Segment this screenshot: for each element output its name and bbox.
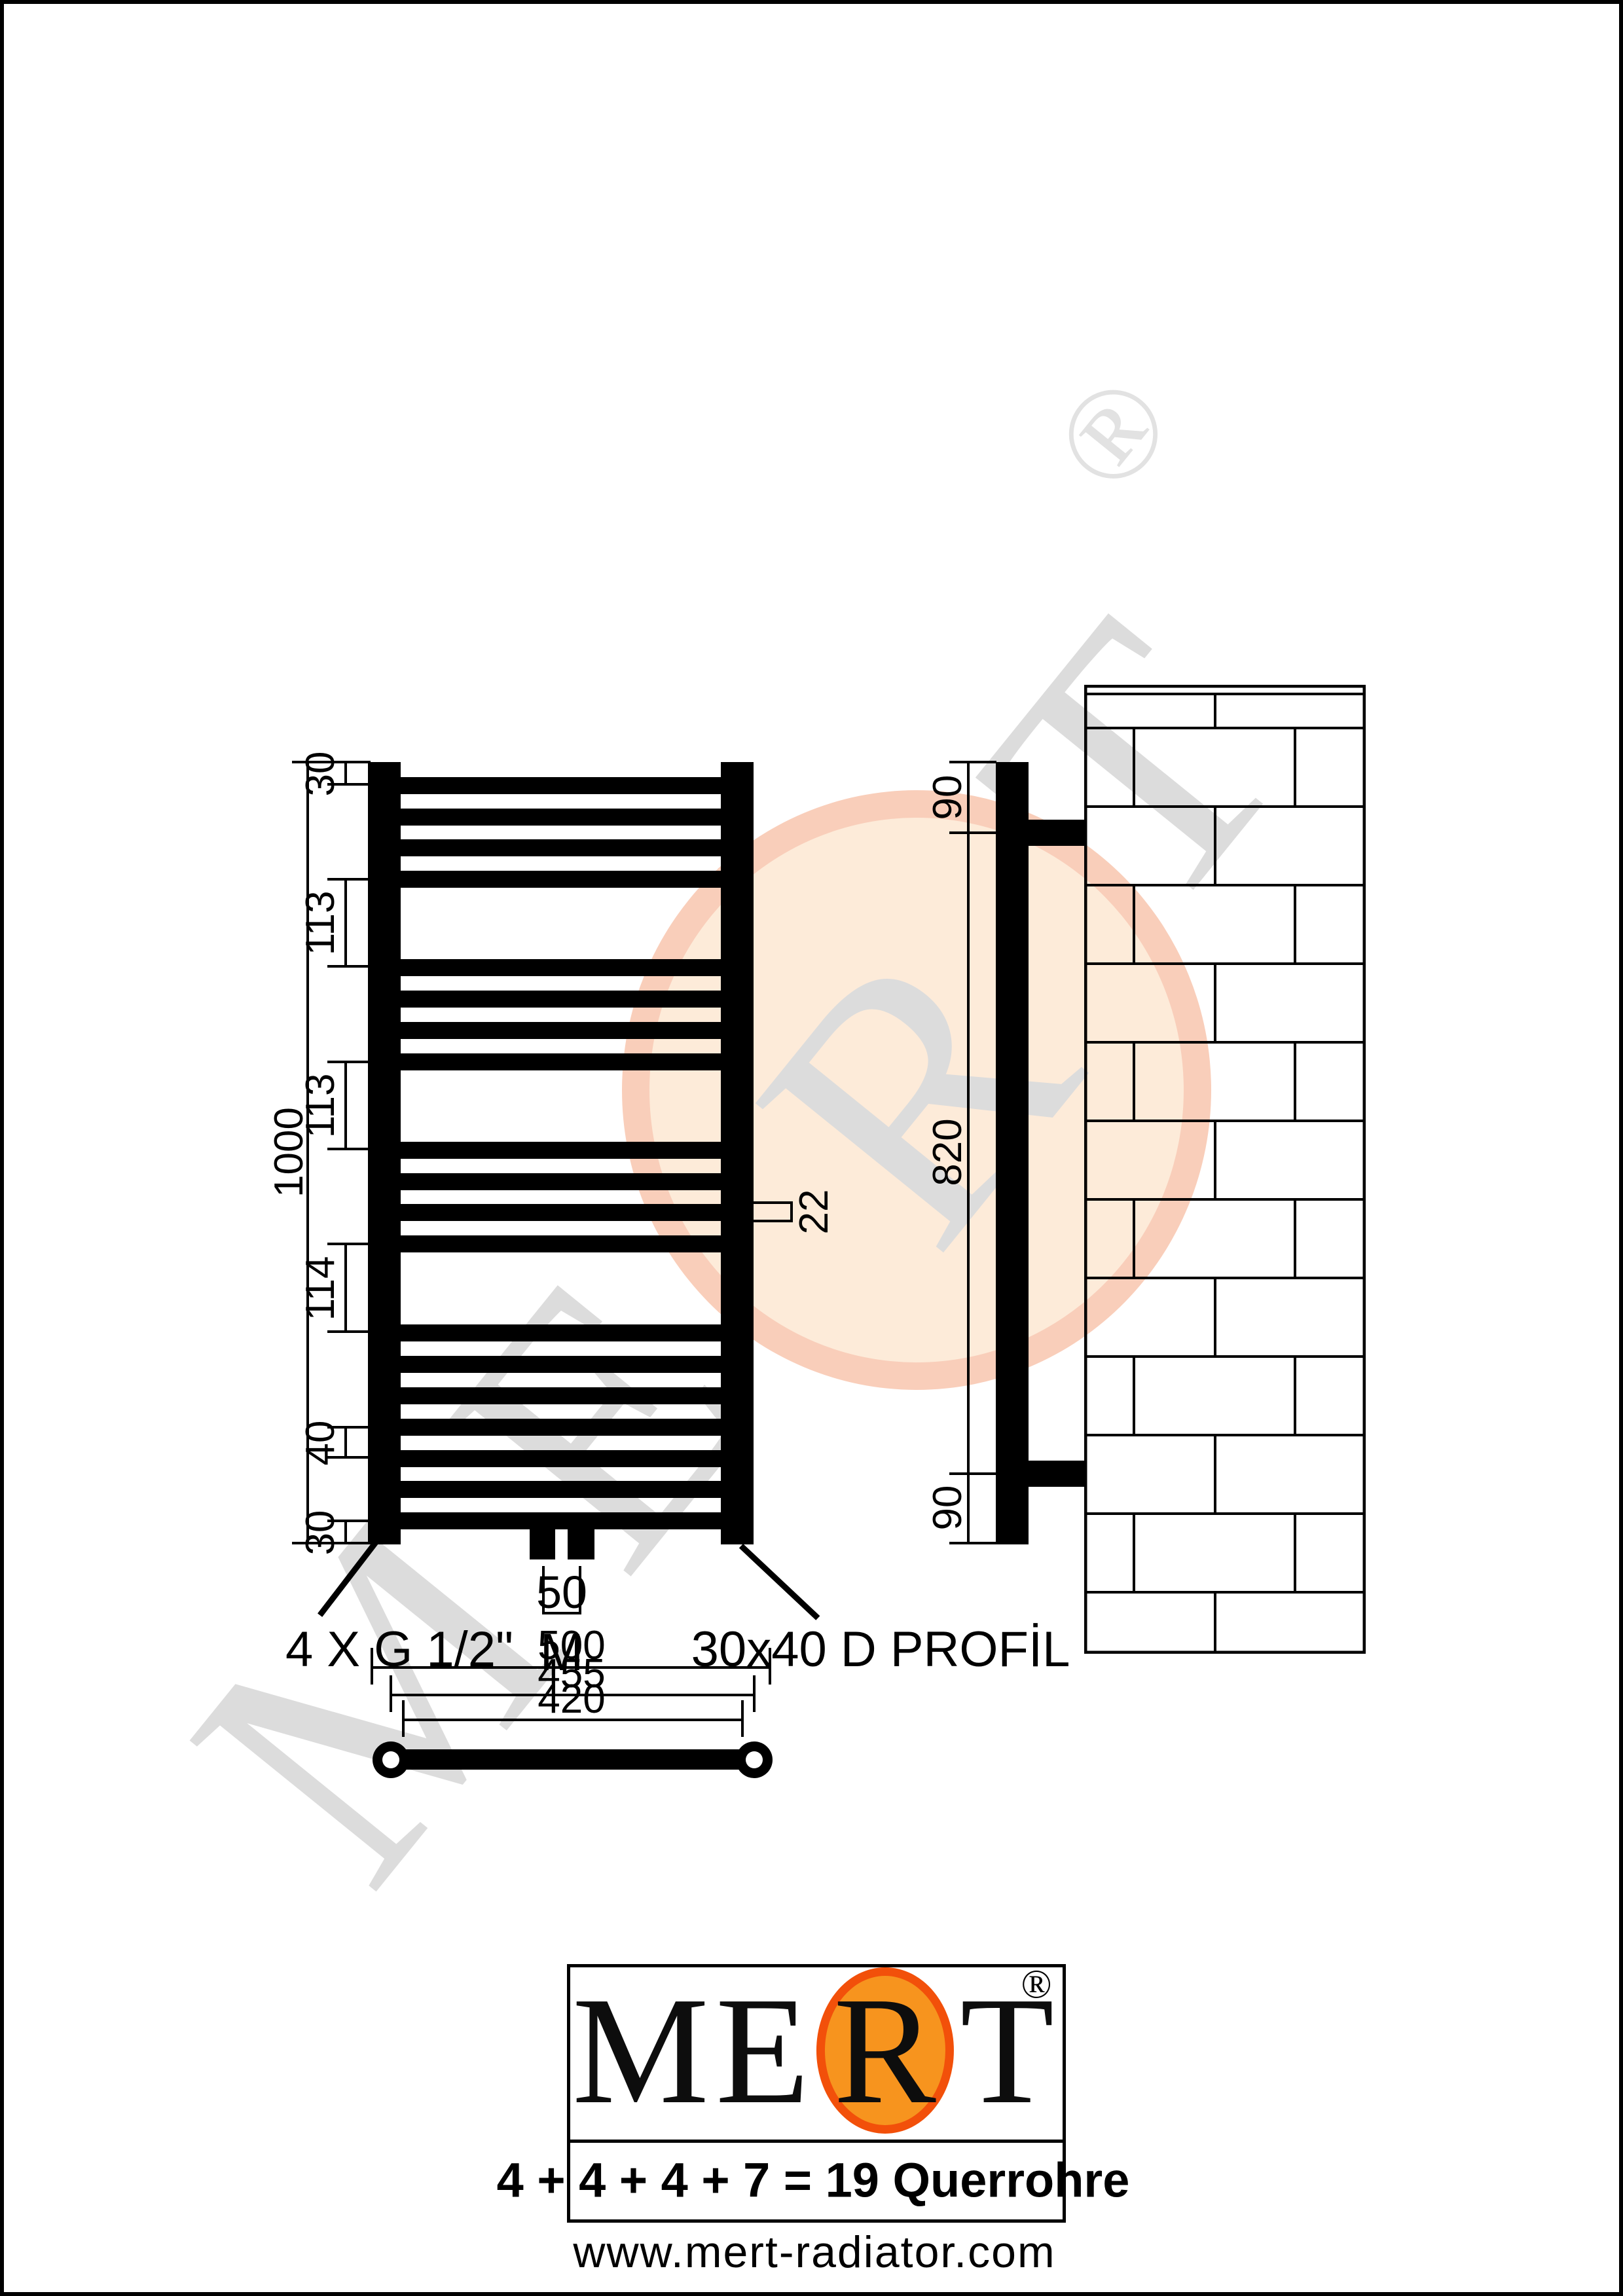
logo-registered-icon: ® bbox=[1021, 1962, 1051, 2009]
top-view-rail-left-bore bbox=[382, 1751, 399, 1768]
cross-tube bbox=[401, 1387, 721, 1404]
connection-tab-left bbox=[530, 1529, 555, 1559]
dim-text-90-bottom: 90 bbox=[928, 1485, 968, 1531]
connection-tab-right bbox=[568, 1529, 594, 1559]
dim-text-114: 114 bbox=[301, 1256, 341, 1321]
dim-text-820: 820 bbox=[928, 1118, 968, 1186]
dim-text-113-upper: 113 bbox=[301, 891, 341, 956]
logo-orange-ellipse: R bbox=[816, 1967, 953, 2134]
cross-tube bbox=[401, 1419, 721, 1436]
side-profile-bar bbox=[996, 762, 1029, 1544]
cross-tube bbox=[401, 1142, 721, 1159]
logo-letter-e: E bbox=[716, 1974, 810, 2128]
dim-tick bbox=[949, 1542, 996, 1544]
dim-tick bbox=[327, 1061, 371, 1063]
dim-text-113-mid: 113 bbox=[301, 1074, 341, 1139]
logo-divider bbox=[567, 2140, 1066, 2143]
cross-tube bbox=[401, 959, 721, 976]
cross-tube bbox=[401, 1204, 721, 1221]
dim-text-30-bottom: 30 bbox=[301, 1510, 341, 1556]
dim-tick bbox=[402, 1700, 405, 1737]
front-rail-right bbox=[721, 762, 754, 1544]
top-view-rail-right-bore bbox=[746, 1751, 763, 1768]
dim-tick bbox=[741, 1700, 744, 1737]
dim-tick bbox=[390, 1675, 392, 1712]
dim-tick bbox=[949, 831, 996, 834]
cross-tube bbox=[401, 1481, 721, 1498]
cross-tube bbox=[401, 1022, 721, 1039]
logo-letter-r: R bbox=[833, 1974, 936, 2128]
cross-tube bbox=[401, 871, 721, 888]
dim-tick bbox=[753, 1675, 756, 1712]
dim-line-seg bbox=[344, 762, 347, 786]
dim-line-seg bbox=[344, 879, 347, 968]
dim-line-seg bbox=[344, 1521, 347, 1544]
cross-tube bbox=[401, 991, 721, 1008]
dim-tick bbox=[769, 1648, 771, 1685]
cross-tube bbox=[401, 809, 721, 826]
top-view-tube-bar bbox=[391, 1749, 754, 1770]
cross-tube bbox=[401, 777, 721, 794]
dim-tick bbox=[949, 1472, 996, 1475]
dim-tick bbox=[327, 878, 371, 881]
cross-tube bbox=[401, 1235, 721, 1252]
mert-logo: M E R T bbox=[572, 1967, 1054, 2134]
drawing-page: M E R T ® 1000 30 113 113 114 40 30 22 4… bbox=[0, 0, 1623, 2296]
logo-letter-m: M bbox=[572, 1974, 709, 2128]
dim-tick bbox=[327, 965, 371, 968]
dim-line-seg bbox=[344, 1062, 347, 1150]
watermark-registered-icon: ® bbox=[1030, 354, 1195, 514]
leader-line-profile bbox=[739, 1544, 820, 1620]
dim-tick bbox=[949, 761, 996, 763]
dim-tick bbox=[754, 1201, 793, 1204]
dim-line-seg bbox=[344, 1244, 347, 1333]
dim-line-seg bbox=[344, 1427, 347, 1459]
dim-text-30-top: 30 bbox=[301, 752, 341, 797]
dim-text-50: 50 bbox=[536, 1569, 587, 1615]
front-rail-left bbox=[368, 762, 401, 1544]
dim-tick bbox=[327, 1330, 371, 1333]
wall-bracket-top bbox=[1029, 820, 1085, 846]
dim-text-420: 420 bbox=[538, 1679, 605, 1720]
dim-text-22: 22 bbox=[794, 1190, 835, 1235]
cross-tube bbox=[401, 1356, 721, 1373]
dim-text-40: 40 bbox=[301, 1421, 341, 1466]
dim-tick bbox=[327, 1243, 371, 1245]
cross-tube bbox=[401, 1324, 721, 1341]
cross-tube bbox=[401, 1512, 721, 1529]
website-url: www.mert-radiator.com bbox=[573, 2227, 1055, 2278]
cross-tube bbox=[401, 839, 721, 856]
dim-tick bbox=[327, 1148, 371, 1150]
wall-bracket-bottom bbox=[1029, 1461, 1085, 1487]
dim-tick bbox=[754, 1220, 793, 1222]
brick-wall bbox=[1084, 685, 1366, 1654]
tube-formula: 4 + 4 + 4 + 7 = 19 Querrohre bbox=[497, 2153, 1130, 2208]
cross-tube bbox=[401, 1053, 721, 1070]
cross-tube bbox=[401, 1450, 721, 1467]
cross-tube bbox=[401, 1173, 721, 1190]
dim-text-90-top: 90 bbox=[928, 775, 968, 820]
dim-tick bbox=[371, 1648, 373, 1685]
